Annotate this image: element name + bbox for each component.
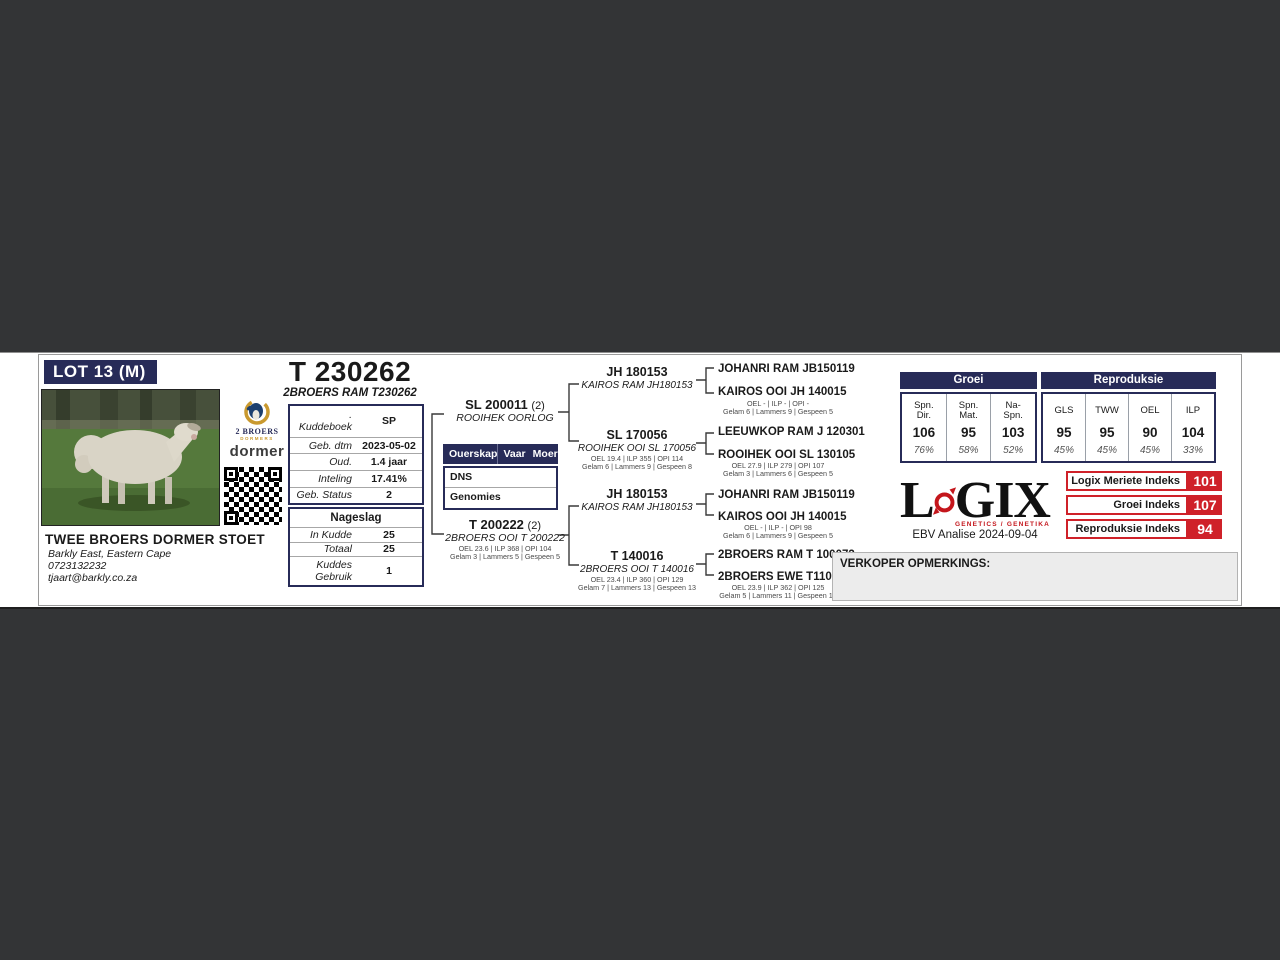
index-value: 94 [1188,519,1222,539]
ebv-cell: Spn.Dir. 106 76% [902,394,946,461]
sire-id-suffix: (2) [531,400,544,412]
great-grandparent-name: KAIROS OOI JH 140015 [718,511,846,523]
ebv-label: ILP [1186,406,1200,417]
logix-letters-gix: GIX [955,480,1050,522]
index-label: Groei Indeks [1066,495,1188,515]
great-grandparent-name: KAIROS OOI JH 140015 [718,386,846,398]
ebv-label: TWW [1095,406,1119,417]
ebv-accuracy: 45% [1054,443,1074,458]
dam-stats: Gelam 3 | Lammers 5 | Gespeen 5 [435,553,575,562]
groei-table: Spn.Dir. 106 76% Spn.Mat. 95 58% Na-Spn.… [900,392,1037,463]
ebv-label: OEL [1140,406,1159,417]
grandparent-stats: Gelam 6 | Lammers 9 | Gespeen 8 [572,463,702,472]
ebv-accuracy: 45% [1097,443,1117,458]
sire-name: ROOIHEK OORLOG [445,412,565,424]
ebv-cell: TWW 95 45% [1085,394,1128,461]
great-grandparent-name: ROOIHEK OOI SL 130105 [718,449,855,461]
logix-meriete-indeks-row: Logix Meriete Indeks 101 [1066,471,1222,491]
dam-id-suffix: (2) [528,520,541,532]
dam-id-text: T 200222 [469,517,524,532]
ebv-value: 103 [1002,423,1025,443]
ebv-value: 95 [961,423,976,443]
ebv-label: Spn. [1003,411,1023,422]
dam-name: 2BROERS OOI T 200222 [435,532,575,544]
great-grandparent-name: JOHANRI RAM JB150119 [718,489,855,501]
great-grandparent-stats: Gelam 6 | Lammers 9 | Gespeen 5 [713,408,843,417]
ebv-accuracy: 58% [959,443,979,458]
groei-header: Groei [900,372,1037,389]
reproduksie-header: Reproduksie [1041,372,1216,389]
verkoper-opmerkings-label: VERKOPER OPMERKINGS: [840,558,990,570]
catalog-page: LOT 13 (M) [0,352,1280,609]
grandparent-name: 2BROERS OOI T 140016 [572,564,702,575]
great-grandparent-stats: Gelam 6 | Lammers 9 | Gespeen 5 [713,532,843,541]
index-label: Reproduksie Indeks [1066,519,1188,539]
logix-subtitle: GENETICS / GENETIKA [955,521,1050,528]
ebv-value: 95 [1056,423,1071,443]
ebv-value: 106 [913,423,936,443]
index-value: 101 [1188,471,1222,491]
dam-id: T 200222 (2) [435,517,575,532]
grandparent-id: JH 180153 [572,487,702,501]
ebv-accuracy: 76% [914,443,934,458]
grandparent-id: T 140016 [572,549,702,563]
sire-id: SL 200011 (2) [445,397,565,412]
reproduksie-indeks-row: Reproduksie Indeks 94 [1066,519,1222,539]
logix-letter-l: L [900,480,935,522]
groei-indeks-row: Groei Indeks 107 [1066,495,1222,515]
ebv-accuracy: 45% [1140,443,1160,458]
great-grandparent-name: LEEUWKOP RAM J 120301 [718,426,865,438]
logix-logo: L GIX GENETICS / GENETIKA [900,478,1050,522]
great-grandparent-stats: Gelam 3 | Lammers 6 | Gespeen 5 [713,470,843,479]
grandparent-id: JH 180153 [572,365,702,379]
ebv-cell: Spn.Mat. 95 58% [946,394,991,461]
logix-ring-icon [933,481,956,521]
sire-id-text: SL 200011 [465,397,528,412]
grandparent-name: ROOIHEK OOI SL 170056 [572,443,702,454]
grandparent-name: KAIROS RAM JH180153 [572,380,702,391]
grandparent-stats: Gelam 7 | Lammers 13 | Gespeen 13 [572,584,702,593]
ebv-value: 95 [1099,423,1114,443]
ebv-accuracy: 33% [1183,443,1203,458]
index-value: 107 [1188,495,1222,515]
ebv-accuracy: 52% [1003,443,1023,458]
great-grandparent-stats: Gelam 5 | Lammers 11 | Gespeen 10 [713,592,843,601]
ebv-cell: OEL 90 45% [1128,394,1171,461]
ebv-value: 104 [1182,423,1205,443]
screenshot-canvas: LOT 13 (M) [0,0,1280,960]
reproduksie-table: GLS 95 45% TWW 95 45% OEL 90 45% ILP 104… [1041,392,1216,463]
ebv-cell: Na-Spn. 103 52% [990,394,1035,461]
great-grandparent-name: JOHANRI RAM JB150119 [718,363,855,375]
index-label: Logix Meriete Indeks [1066,471,1188,491]
verkoper-opmerkings-box: VERKOPER OPMERKINGS: [832,552,1238,601]
ebv-label: Mat. [959,411,979,422]
great-grandparent-name: 2BROERS EWE T110068 [718,571,851,583]
ebv-cell: ILP 104 33% [1171,394,1214,461]
ebv-value: 90 [1142,423,1157,443]
ebv-label: Dir. [914,411,934,422]
grandparent-id: SL 170056 [572,428,702,442]
ebv-label: GLS [1054,406,1073,417]
ebv-cell: GLS 95 45% [1043,394,1085,461]
ebv-analysis-date: EBV Analise 2024-09-04 [898,529,1052,541]
grandparent-name: KAIROS RAM JH180153 [572,502,702,513]
